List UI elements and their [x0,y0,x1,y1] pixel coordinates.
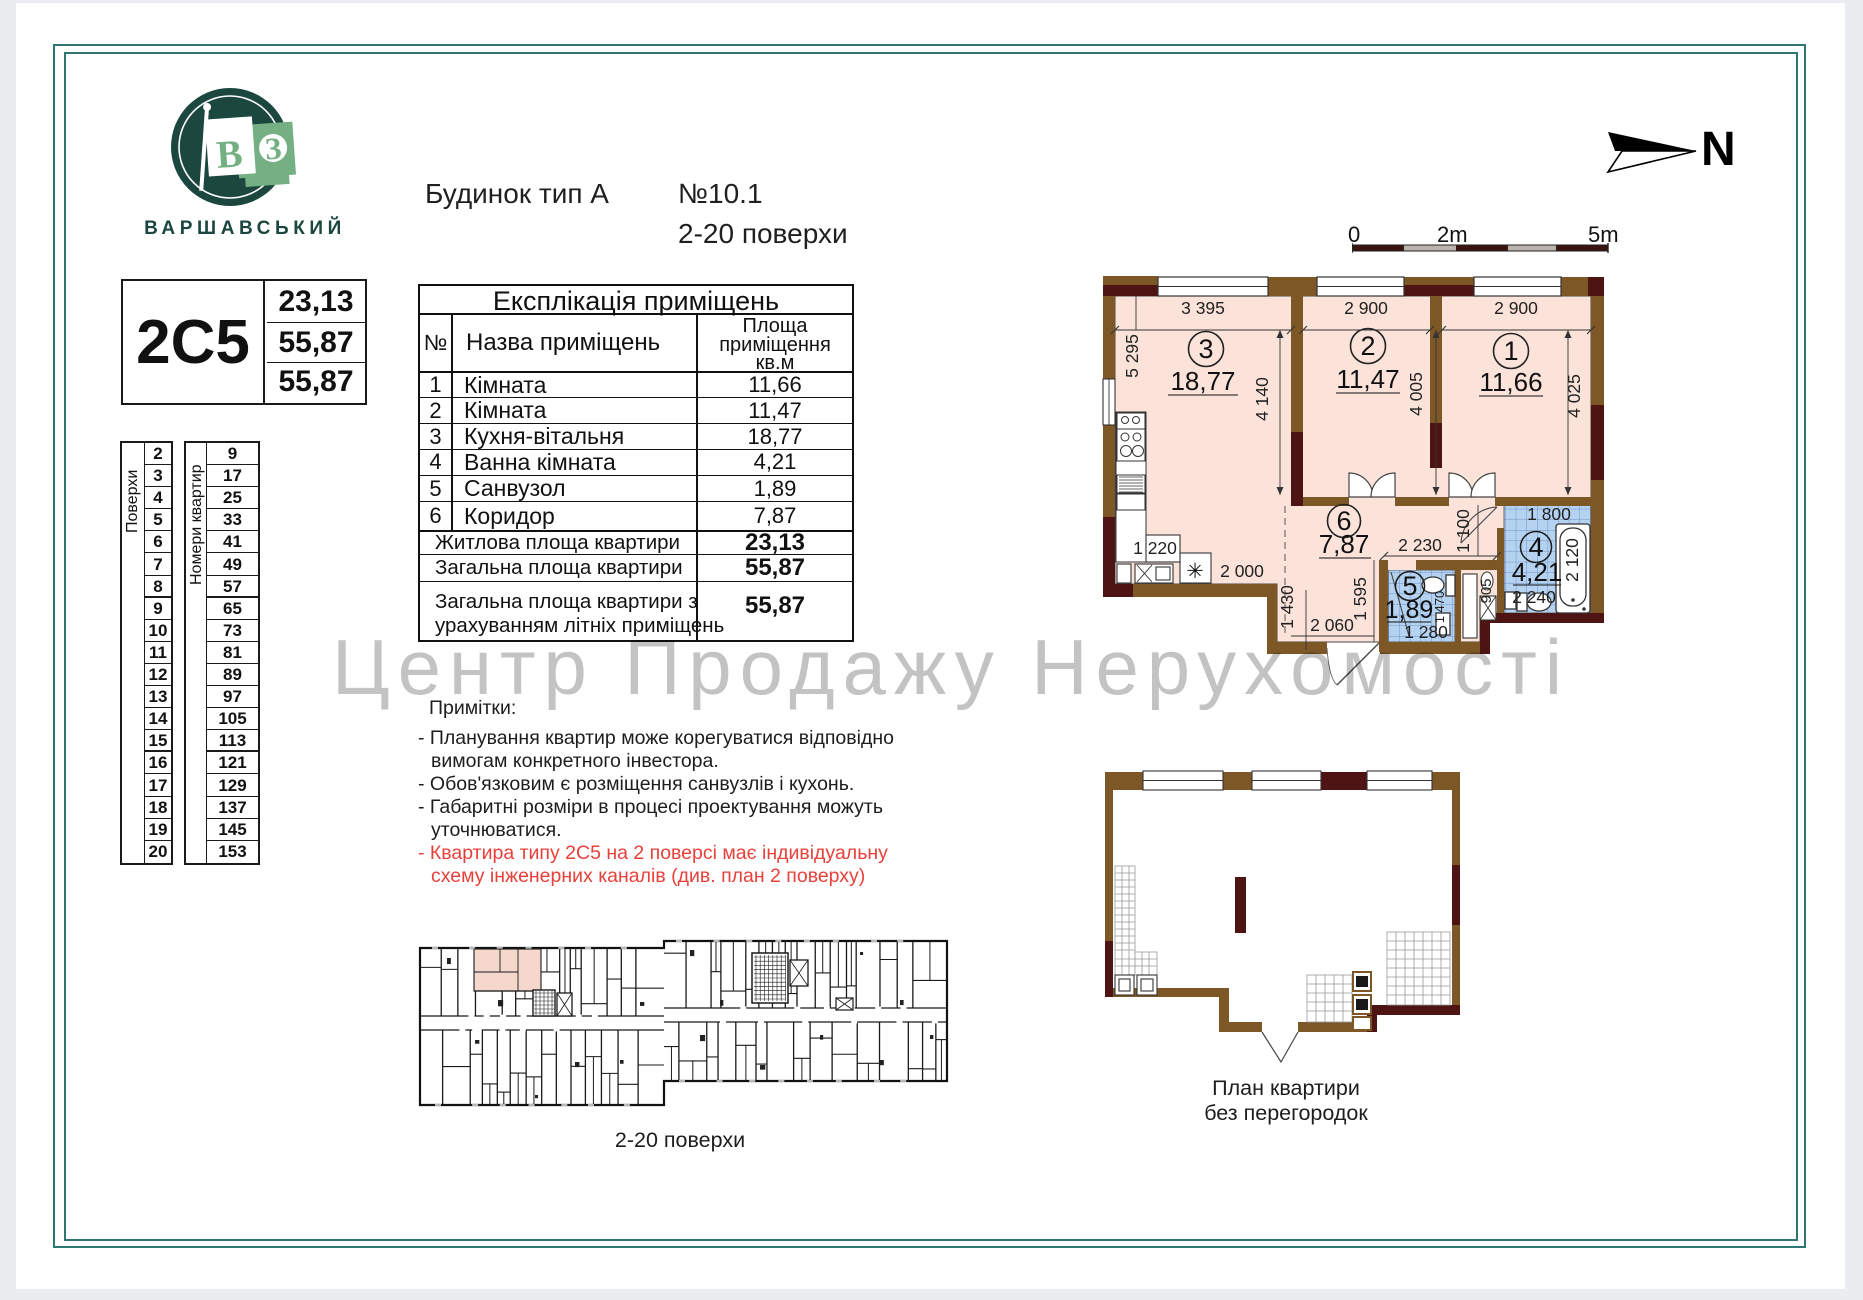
svg-text:2 240: 2 240 [1512,587,1556,607]
svg-text:11,66: 11,66 [1479,367,1542,397]
svg-text:3 395: 3 395 [1181,298,1225,318]
svg-text:18,77: 18,77 [1170,366,1235,396]
svg-text:4 025: 4 025 [1564,374,1584,418]
svg-text:7,87: 7,87 [1319,529,1370,559]
svg-text:ВАРШАВСЬКИЙ: ВАРШАВСЬКИЙ [144,217,346,239]
svg-text:В: В [215,132,244,177]
svg-text:5 295: 5 295 [1122,334,1142,378]
svg-text:1,89: 1,89 [1385,596,1434,624]
svg-text:905: 905 [1478,578,1495,603]
svg-text:4 140: 4 140 [1252,377,1272,421]
svg-text:2 900: 2 900 [1344,298,1388,318]
svg-text:1 220: 1 220 [1133,538,1177,558]
svg-text:4 005: 4 005 [1406,372,1426,416]
svg-text:4,21: 4,21 [1512,557,1563,587]
svg-text:2 120: 2 120 [1562,538,1582,582]
svg-text:1 470: 1 470 [1432,591,1447,624]
svg-text:1: 1 [1503,336,1518,366]
svg-text:1 100: 1 100 [1453,509,1473,553]
svg-text:✳: ✳ [1186,560,1204,583]
svg-text:1 800: 1 800 [1527,504,1571,524]
svg-text:2 230: 2 230 [1398,535,1442,555]
svg-text:11,47: 11,47 [1336,364,1399,394]
svg-text:2: 2 [1360,331,1375,361]
svg-text:З: З [264,130,283,166]
svg-text:2 900: 2 900 [1494,298,1538,318]
svg-text:2 000: 2 000 [1220,561,1264,581]
svg-text:3: 3 [1198,334,1213,364]
svg-text:1 595: 1 595 [1350,577,1370,621]
